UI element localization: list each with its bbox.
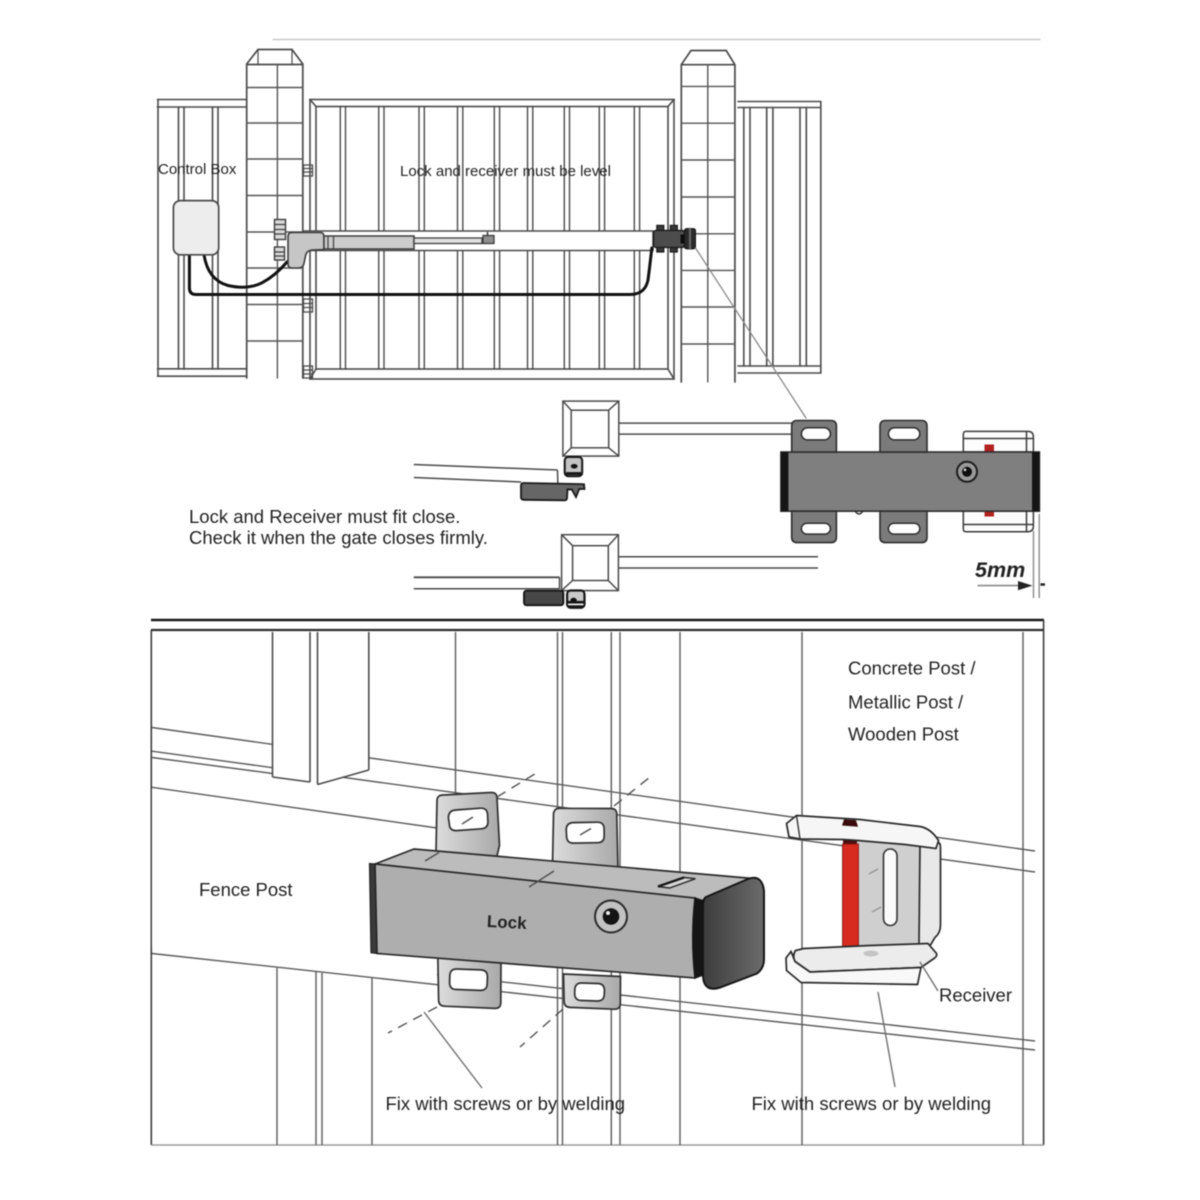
svg-text:Fence Post: Fence Post	[199, 879, 293, 900]
svg-text:Lock and Receiver must fit clo: Lock and Receiver must fit close.	[189, 506, 460, 527]
svg-text:Wooden Post: Wooden Post	[848, 724, 959, 745]
svg-text:Receiver: Receiver	[939, 985, 1012, 1006]
svg-text:Concrete Post /: Concrete Post /	[848, 658, 976, 679]
svg-text:5mm: 5mm	[975, 558, 1025, 582]
svg-text:Check it when the gate closes: Check it when the gate closes firmly.	[189, 527, 488, 548]
svg-text:Fix with screws or by welding: Fix with screws or by welding	[752, 1093, 992, 1114]
svg-text:Fix with screws or by welding: Fix with screws or by welding	[386, 1093, 626, 1114]
svg-text:Lock: Lock	[486, 912, 527, 933]
svg-text:Control Box: Control Box	[158, 161, 237, 178]
svg-text:Metallic Post /: Metallic Post /	[848, 692, 964, 713]
svg-text:Lock and receiver must be leve: Lock and receiver must be level	[400, 163, 611, 180]
